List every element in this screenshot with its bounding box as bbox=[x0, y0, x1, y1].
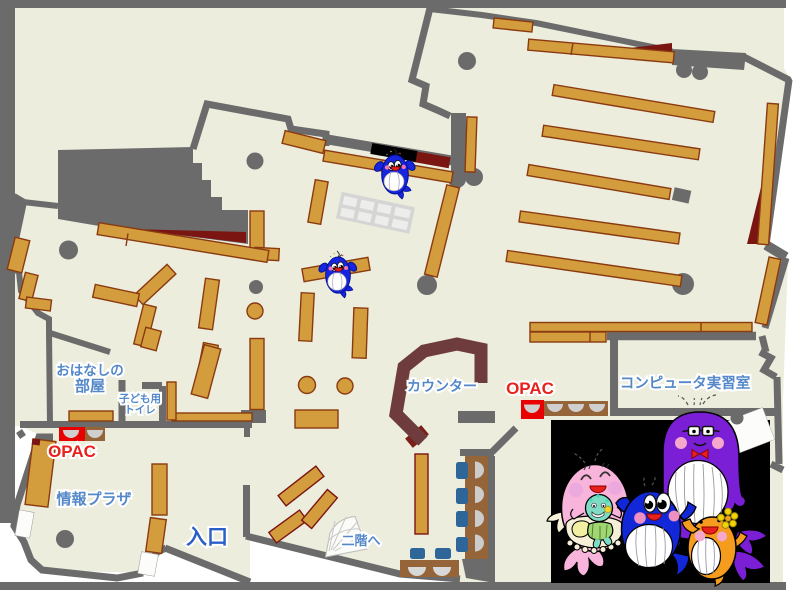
svg-text:おはなしの: おはなしの bbox=[56, 363, 124, 378]
svg-text:コンピュータ実習室: コンピュータ実習室 bbox=[620, 374, 751, 392]
svg-text:入口: 入口 bbox=[186, 526, 228, 549]
svg-text:OPAC: OPAC bbox=[48, 442, 96, 461]
svg-text:カウンター: カウンター bbox=[407, 378, 477, 394]
svg-text:二階へ: 二階へ bbox=[341, 533, 380, 548]
svg-text:OPAC: OPAC bbox=[506, 379, 554, 398]
svg-text:情報プラザ: 情報プラザ bbox=[56, 490, 131, 508]
svg-text:トイレ: トイレ bbox=[124, 404, 156, 416]
svg-text:部屋: 部屋 bbox=[75, 377, 105, 395]
